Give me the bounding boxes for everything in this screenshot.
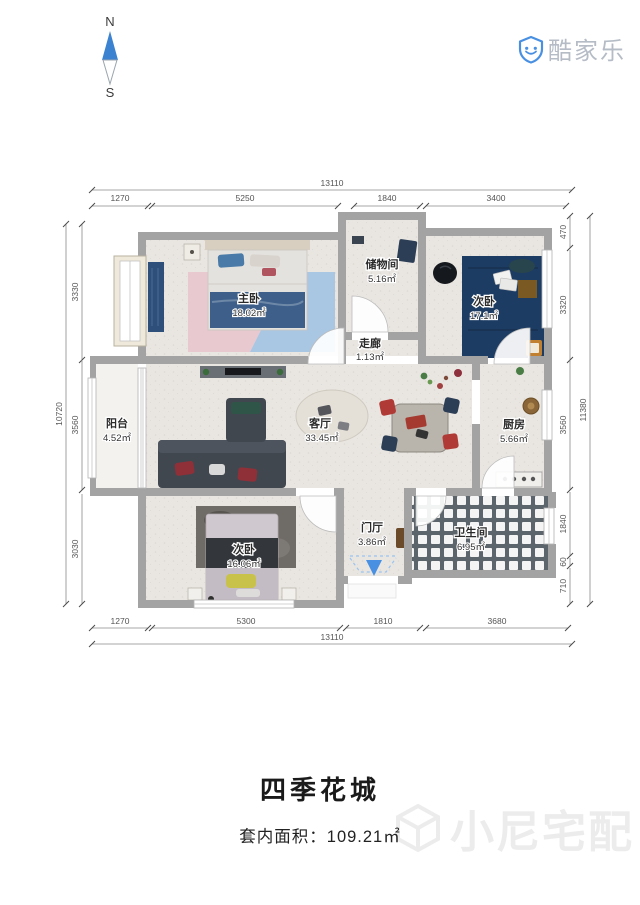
room-label-bathroom-name: 卫生间	[455, 525, 488, 539]
kujiale-logo: 酷家乐	[520, 37, 626, 65]
room-label-bedroom3-area: 16.06㎡	[227, 559, 261, 570]
room-label-bedroom2-area: 17.1㎡	[470, 311, 498, 322]
logo-shield-icon	[520, 37, 542, 63]
dimensions-bottom: 1270 5300 1810 3680 13110	[89, 616, 575, 647]
room-label-bathroom-area: 6.95㎡	[457, 542, 485, 553]
desk	[518, 280, 537, 298]
bedroom2-window	[542, 250, 552, 328]
dim-label: 5250	[236, 193, 255, 203]
kitchen-window	[542, 390, 552, 440]
room-label-corridor-area: 1.13㎡	[356, 352, 384, 363]
dim-label: 3400	[487, 193, 506, 203]
dimensions-left: 3330 3560 3030 10720	[54, 221, 85, 607]
room-label-storage-name: 储物间	[366, 257, 399, 271]
chair	[379, 398, 397, 416]
room-label-kitchen-area: 5.66㎡	[500, 434, 528, 445]
beanbag	[433, 262, 457, 284]
dim-label: 3680	[488, 616, 507, 626]
dimensions-top: 13110 1270 5250 1840 3400	[89, 178, 575, 209]
dim-label: 3560	[558, 415, 568, 434]
pillow	[236, 589, 260, 597]
indoor-area-label: 套内面积：	[239, 828, 327, 846]
room-label-living-name: 客厅	[308, 416, 331, 430]
bedroom3-bed	[206, 514, 278, 602]
dim-label: 3560	[70, 415, 80, 434]
dim-label: 60	[558, 557, 568, 567]
pillow	[209, 464, 225, 475]
wardrobe	[148, 262, 164, 332]
pillow	[218, 253, 245, 268]
dim-label: 710	[558, 579, 568, 593]
dim-label: 470	[558, 225, 568, 239]
logo-text: 酷家乐	[548, 38, 626, 65]
dim-label: 1840	[378, 193, 397, 203]
compass: N S	[102, 14, 118, 100]
chair	[381, 435, 398, 452]
pillow	[237, 467, 257, 482]
dim-label: 10720	[54, 402, 64, 426]
room-label-corridor-name: 走廊	[358, 336, 381, 350]
tv	[225, 368, 261, 375]
balcony-sliding-door	[138, 368, 146, 488]
room-label-balcony-name: 阳台	[106, 416, 128, 430]
chair	[442, 397, 460, 415]
balcony-window	[88, 378, 96, 478]
room-label-bedroom2-name: 次卧	[473, 294, 495, 308]
dim-label: 3030	[70, 539, 80, 558]
master-window	[114, 256, 146, 346]
dim-label: 1270	[111, 616, 130, 626]
pillow	[226, 574, 256, 588]
bathroom-window	[544, 508, 554, 544]
room-label-hall-name: 门厅	[361, 520, 383, 534]
floor-plan: N S 酷家乐	[0, 0, 640, 760]
pillow	[250, 254, 281, 268]
dim-label: 1810	[374, 616, 393, 626]
compass-south-label: S	[106, 85, 115, 100]
page: N S 酷家乐	[0, 0, 640, 905]
compass-north-label: N	[105, 14, 114, 29]
dim-label: 1270	[111, 193, 130, 203]
room-label-storage-area: 5.16㎡	[368, 274, 396, 285]
footer: 四季花城 套内面积：109.21㎡	[0, 770, 640, 847]
dim-label: 3320	[558, 295, 568, 314]
room-label-balcony-area: 4.52㎡	[103, 433, 131, 444]
bedroom3-window	[194, 600, 294, 608]
chair	[442, 433, 459, 450]
compass-arrow-tail	[103, 60, 117, 84]
room-label-kitchen-name: 厨房	[503, 417, 525, 431]
dim-label: 11380	[578, 398, 588, 421]
dim-label: 13110	[320, 632, 343, 642]
dim-label: 1840	[558, 514, 568, 533]
dim-label: 3330	[70, 282, 80, 301]
dimensions-right: 470 3320 3560 1840 60 710 11380	[558, 213, 593, 607]
room-label-hall-area: 3.86㎡	[358, 537, 386, 548]
indoor-area-value: 109.21㎡	[327, 828, 401, 846]
plan-title: 四季花城	[0, 770, 640, 807]
dim-label: 13110	[320, 178, 343, 188]
indoor-area: 套内面积：109.21㎡	[0, 823, 640, 847]
pillow	[174, 461, 195, 477]
room-label-master-area: 18.02㎡	[232, 308, 266, 319]
room-label-master-name: 主卧	[238, 291, 260, 305]
compass-arrow-icon	[102, 31, 118, 60]
dim-label: 5300	[237, 616, 256, 626]
room-label-bedroom3-name: 次卧	[233, 542, 255, 556]
room-label-living-area: 33.45㎡	[305, 433, 339, 444]
